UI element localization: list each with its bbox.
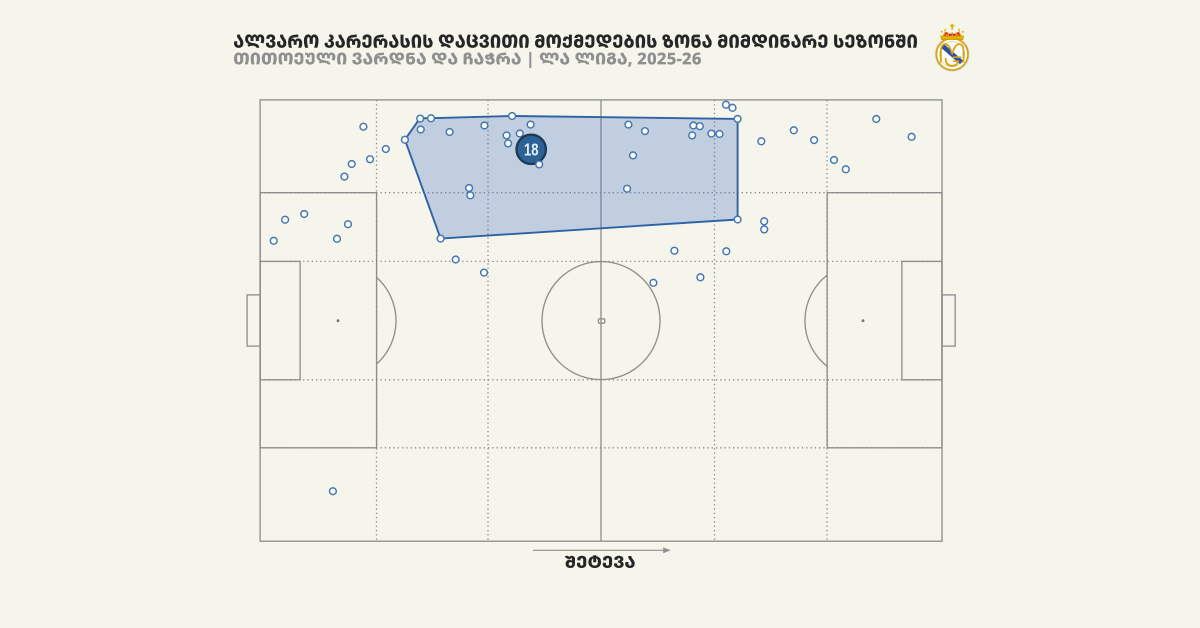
svg-text:18: 18 xyxy=(524,139,539,159)
